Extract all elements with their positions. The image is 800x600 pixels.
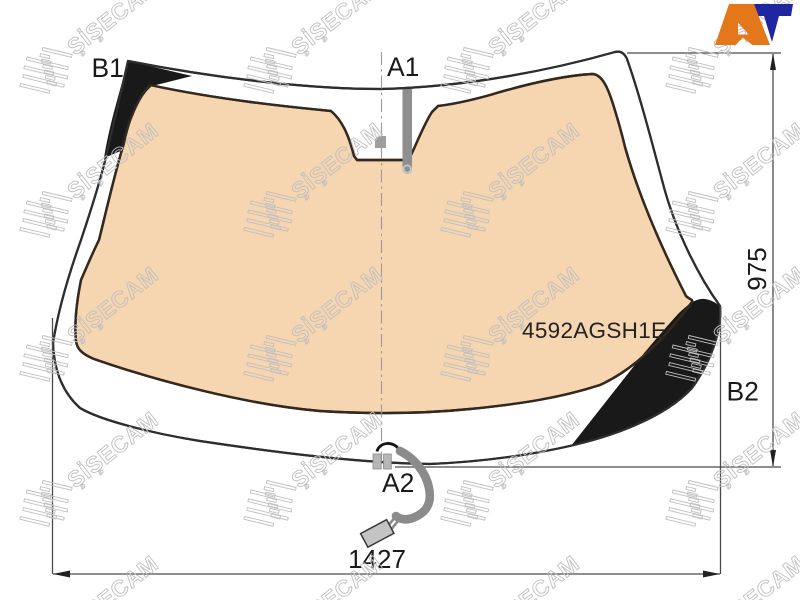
svg-text:B1: B1	[92, 53, 124, 83]
svg-text:A2: A2	[382, 468, 414, 498]
svg-text:4592AGSH1E: 4592AGSH1E	[522, 318, 666, 343]
svg-text:B2: B2	[727, 377, 759, 407]
svg-text:A1: A1	[387, 52, 419, 82]
